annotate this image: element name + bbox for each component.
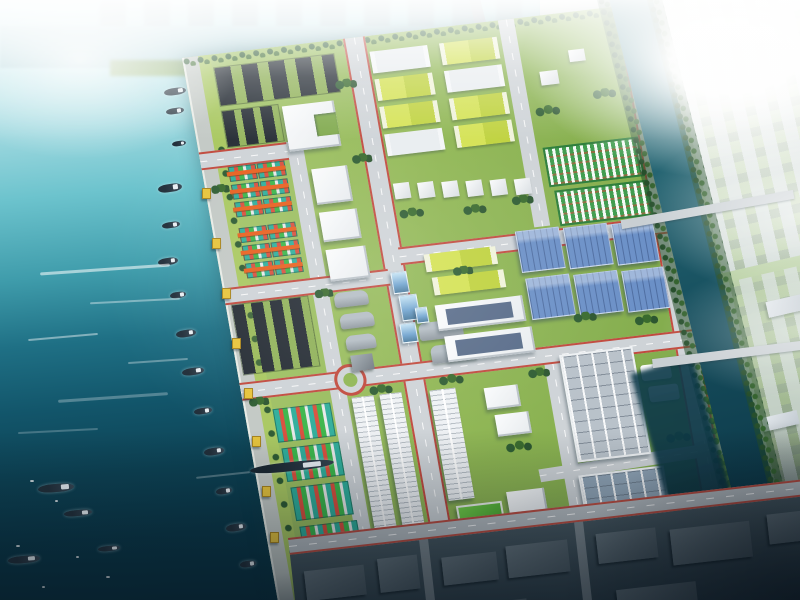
top-haze-band — [0, 0, 800, 140]
scene-aerial-render — [0, 0, 800, 600]
bottom-vignette — [0, 430, 800, 600]
